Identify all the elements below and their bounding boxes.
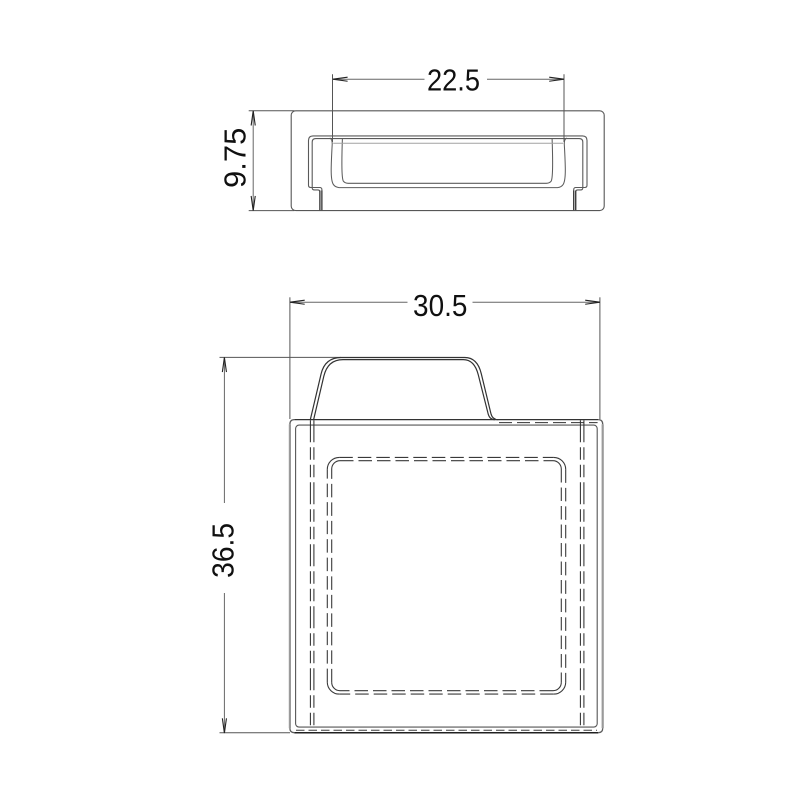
svg-text:9.75: 9.75 — [217, 128, 252, 188]
svg-text:36.5: 36.5 — [207, 523, 242, 578]
svg-text:22.5: 22.5 — [427, 64, 480, 98]
svg-text:30.5: 30.5 — [413, 289, 467, 324]
